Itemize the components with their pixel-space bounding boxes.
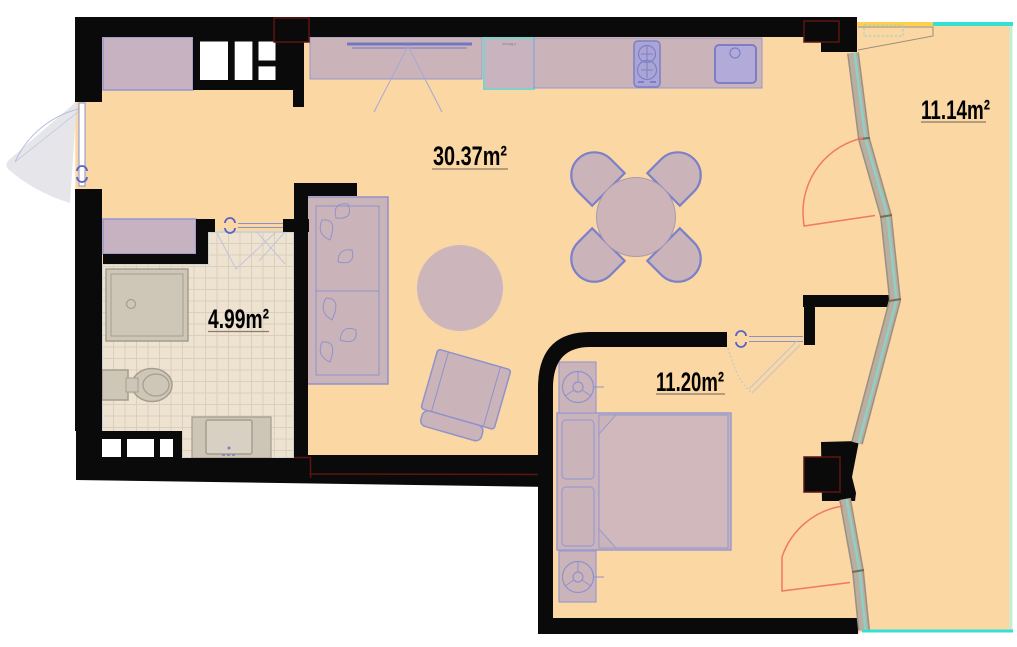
svg-text:холод-к: холод-к xyxy=(502,41,516,46)
svg-text:4.99m²: 4.99m² xyxy=(208,304,269,334)
svg-text:30.37m²: 30.37m² xyxy=(433,141,507,171)
svg-text:11.14m²: 11.14m² xyxy=(921,95,990,125)
svg-text:11.20m²: 11.20m² xyxy=(656,367,724,397)
